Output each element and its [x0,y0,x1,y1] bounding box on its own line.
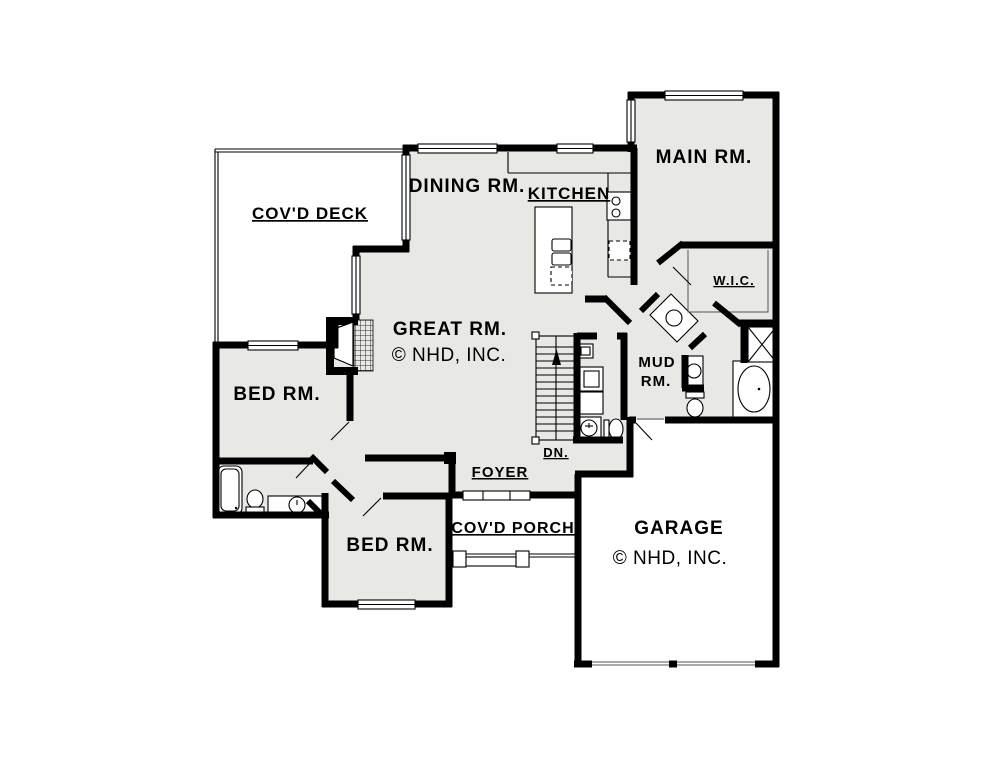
toilet-tank [604,420,609,439]
porch-post [516,551,529,567]
dishwasher-dashed [551,267,572,285]
fireplace-chimney-hatch [354,320,373,371]
island-sink-bowl [552,253,571,265]
label-garage: GARAGE [634,518,723,539]
label-copyright-great-room: © NHD, INC. [392,345,507,366]
label-covd-deck: COV'D DECK [252,204,368,223]
floor-plan-page: COV'D DECK DINING RM. KITCHEN MAIN RM. W… [0,0,1000,763]
porch-step [466,557,516,566]
label-stairs-dn: DN. [543,445,568,460]
toilet-bowl [247,490,263,508]
label-bed-room-lower: BED RM. [346,535,433,556]
newel-post [532,437,539,444]
toilet-bowl [687,399,703,417]
label-covd-porch: COV'D PORCH [451,520,574,537]
toilet-tank [686,392,704,398]
label-copyright-garage: © NHD, INC. [613,548,728,569]
newel-post [532,332,539,339]
porch-post [453,551,466,567]
label-mud-room-line2: RM. [641,373,672,390]
label-great-room: GREAT RM. [393,319,507,340]
label-bed-room-left: BED RM. [233,384,320,405]
angled-vanity-sink [666,310,682,326]
refrigerator-dashed [609,241,630,260]
water-heater [580,392,603,414]
island-sink-bowl [552,239,571,251]
label-kitchen: KITCHEN [528,184,611,203]
label-foyer: FOYER [472,464,529,481]
entry-door [463,491,530,500]
label-main-room: MAIN RM. [656,147,753,168]
label-dining-room: DINING RM. [409,176,526,197]
wall-end-cap [444,452,456,464]
label-mud-room-line1: MUD [638,354,675,371]
toilet-bowl [609,419,623,439]
floor-plan-canvas: COV'D DECK DINING RM. KITCHEN MAIN RM. W… [0,0,1000,763]
bath-vanity-sink [687,364,701,378]
label-wic: W.I.C. [713,273,754,288]
